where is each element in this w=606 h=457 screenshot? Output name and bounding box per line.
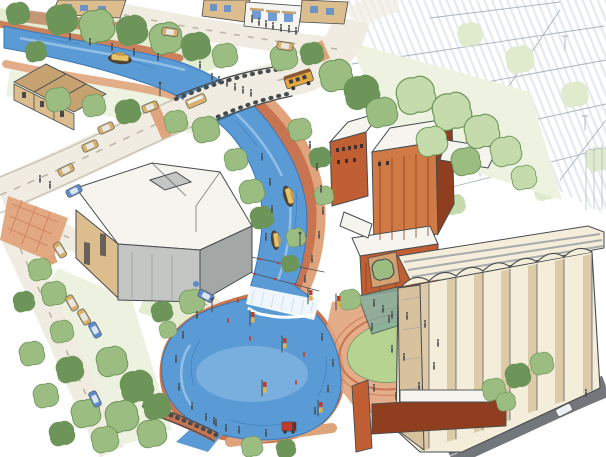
tree bbox=[82, 94, 106, 117]
tree bbox=[41, 281, 67, 306]
tree bbox=[91, 426, 119, 453]
tree bbox=[511, 165, 537, 190]
tree bbox=[505, 363, 531, 388]
tree bbox=[116, 15, 148, 46]
tree bbox=[33, 383, 59, 408]
tree bbox=[366, 97, 398, 128]
tree bbox=[13, 291, 35, 312]
tree bbox=[416, 126, 448, 157]
truck-trailer bbox=[400, 390, 490, 402]
tree bbox=[115, 99, 141, 124]
tree bbox=[149, 22, 183, 54]
tree bbox=[6, 2, 30, 25]
tree bbox=[239, 179, 265, 204]
tree bbox=[309, 147, 331, 168]
tree bbox=[79, 9, 115, 43]
tree bbox=[530, 352, 554, 375]
tree bbox=[49, 421, 75, 446]
tree bbox=[300, 42, 324, 65]
tree bbox=[496, 392, 516, 411]
tree bbox=[339, 289, 361, 310]
tree bbox=[19, 341, 45, 366]
tree bbox=[288, 118, 312, 141]
tree bbox=[451, 147, 481, 176]
cultural-building bbox=[76, 163, 252, 302]
tree bbox=[490, 136, 522, 167]
tree bbox=[250, 206, 274, 229]
tree bbox=[28, 258, 52, 281]
tree bbox=[25, 41, 47, 62]
car bbox=[277, 41, 294, 51]
tree bbox=[46, 4, 78, 35]
tree bbox=[96, 346, 128, 377]
tree bbox=[56, 356, 84, 383]
tree bbox=[281, 255, 299, 272]
tree bbox=[159, 321, 177, 338]
tree bbox=[151, 301, 173, 322]
courtyard bbox=[368, 252, 400, 288]
tree bbox=[276, 439, 296, 457]
tree bbox=[396, 76, 436, 114]
tree bbox=[181, 32, 211, 61]
tree bbox=[143, 393, 171, 420]
rendering-canvas bbox=[0, 0, 606, 457]
tree bbox=[224, 148, 248, 171]
tree bbox=[212, 43, 238, 68]
tree bbox=[50, 320, 74, 343]
riverwalk-rendering bbox=[0, 0, 606, 457]
tree bbox=[192, 116, 220, 143]
tree bbox=[286, 228, 306, 247]
car bbox=[162, 27, 179, 37]
tree bbox=[241, 436, 263, 457]
tree bbox=[137, 419, 167, 448]
tree bbox=[164, 110, 188, 133]
tree bbox=[314, 186, 334, 205]
tree bbox=[45, 87, 71, 112]
